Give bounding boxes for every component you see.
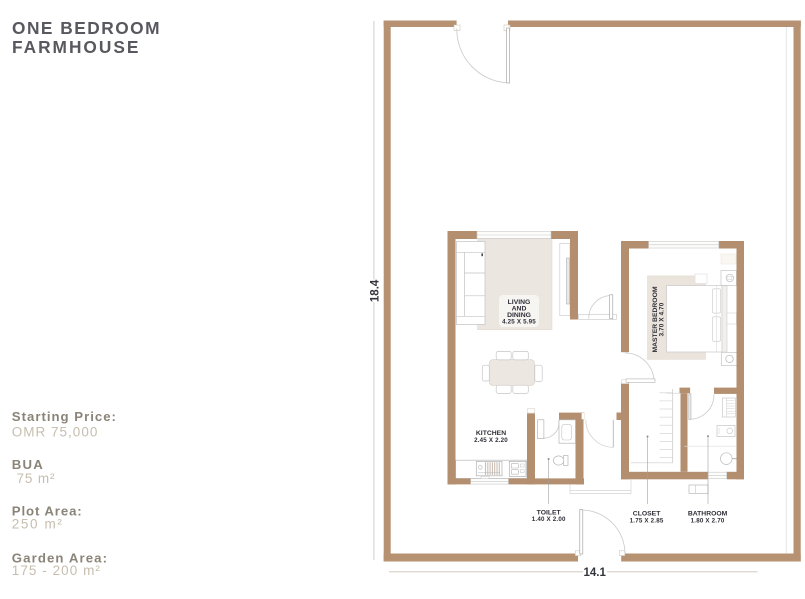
svg-text:75 m²: 75 m² [12,471,56,486]
svg-text:1.80 X 2.70: 1.80 X 2.70 [691,517,725,524]
svg-text:Starting Price:: Starting Price: [12,409,117,424]
svg-text:3.70 X 4.70: 3.70 X 4.70 [659,302,666,336]
svg-text:18.4: 18.4 [369,279,381,302]
svg-text:2.45 X 2.20: 2.45 X 2.20 [474,437,508,444]
svg-text:175 - 200 m²: 175 - 200 m² [12,563,101,578]
svg-text:CLOSET: CLOSET [633,510,661,517]
svg-text:14.1: 14.1 [584,567,607,579]
svg-text:ONE BEDROOM: ONE BEDROOM [12,18,161,38]
svg-text:OMR 75,000: OMR 75,000 [12,425,99,440]
svg-text:1.40 X 2.00: 1.40 X 2.00 [532,516,566,523]
svg-text:BUA: BUA [12,457,44,472]
svg-text:KITCHEN: KITCHEN [476,430,506,437]
svg-text:4.25 X 5.95: 4.25 X 5.95 [502,319,536,326]
svg-text:250 m²: 250 m² [12,516,64,531]
svg-text:BATHROOM: BATHROOM [688,510,728,517]
svg-text:1.75 X 2.85: 1.75 X 2.85 [630,517,664,524]
svg-text:FARMHOUSE: FARMHOUSE [12,37,140,57]
